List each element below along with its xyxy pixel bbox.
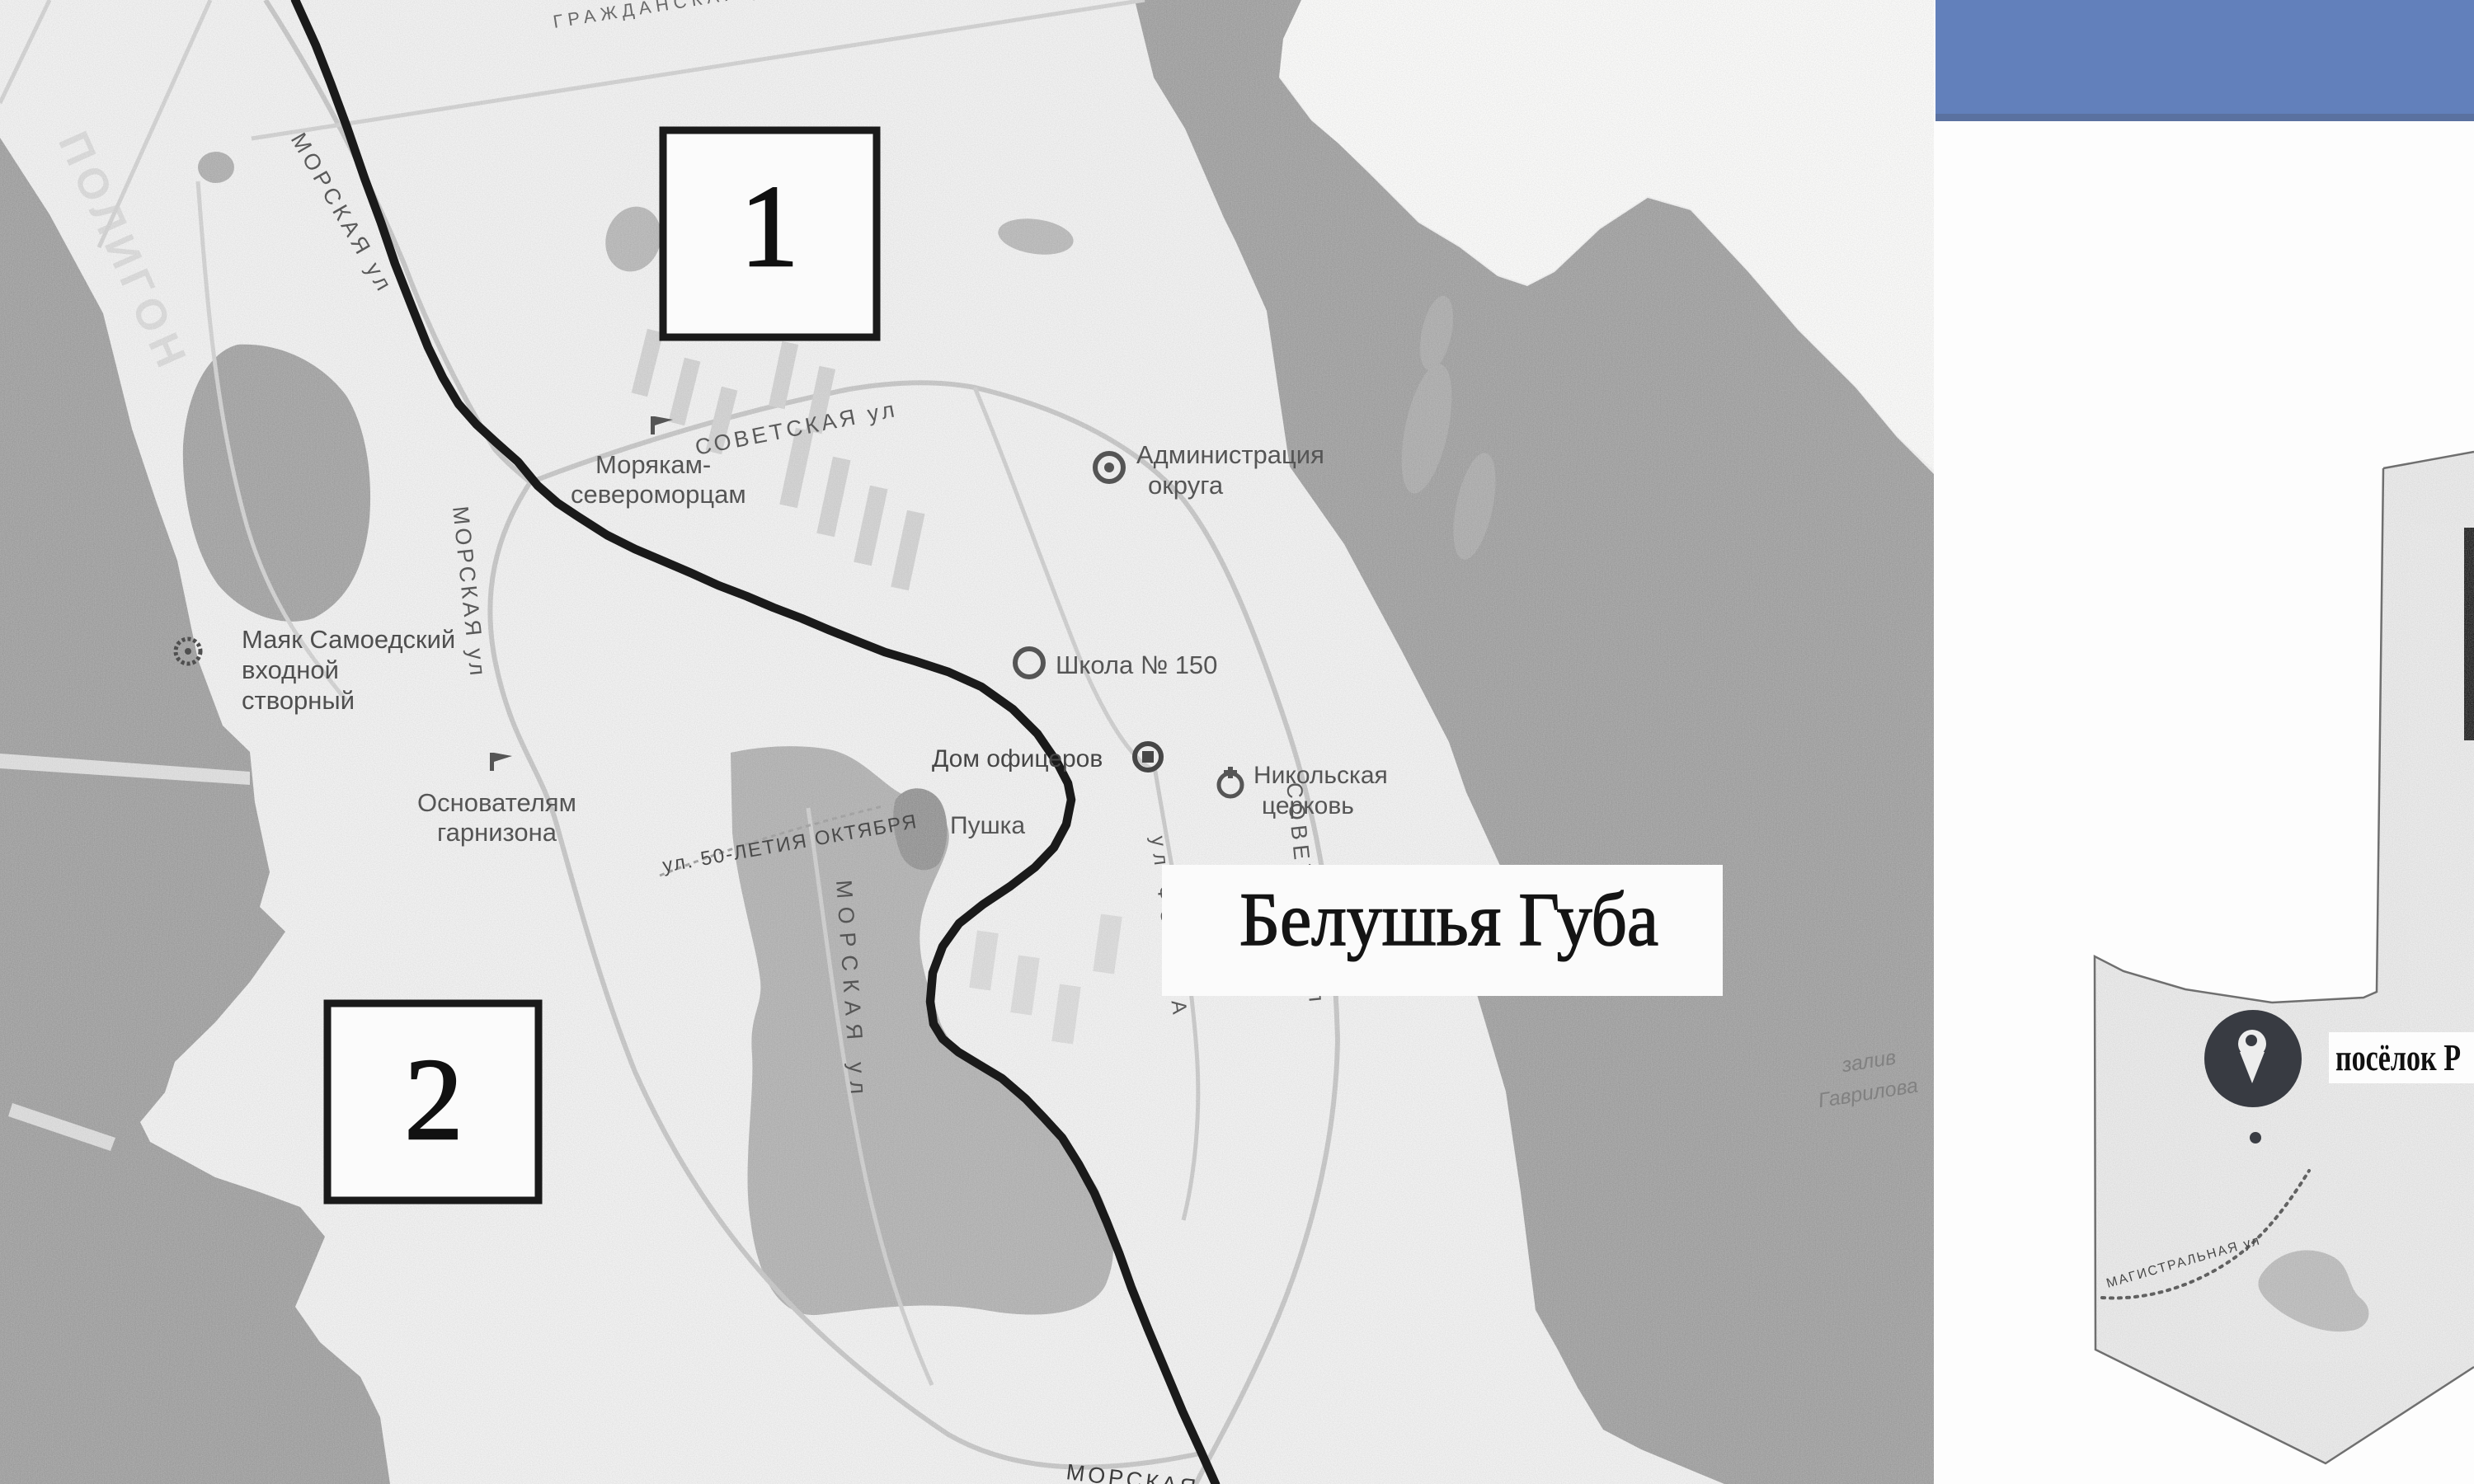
svg-text:посёлок Р: посёлок Р	[2335, 1036, 2461, 1078]
svg-text:Дом офицеров: Дом офицеров	[932, 745, 1103, 773]
svg-text:створный: створный	[242, 686, 355, 715]
svg-text:2: 2	[405, 1034, 463, 1164]
svg-text:гарнизона: гарнизона	[437, 818, 557, 847]
svg-text:Морякам-: Морякам-	[595, 450, 711, 479]
svg-text:Маяк Самоедский: Маяк Самоедский	[242, 625, 455, 654]
svg-text:округа: округа	[1148, 471, 1224, 500]
svg-text:Белушья Губа: Белушья Губа	[1239, 877, 1658, 961]
svg-text:североморцам: североморцам	[571, 480, 746, 509]
svg-text:церковь: церковь	[1262, 792, 1354, 819]
svg-text:Основателям: Основателям	[417, 788, 576, 817]
svg-text:входной: входной	[242, 655, 339, 684]
svg-text:Пушка: Пушка	[950, 812, 1025, 839]
svg-text:Школа № 150: Школа № 150	[1056, 650, 1217, 679]
svg-text:1: 1	[741, 161, 799, 291]
svg-text:Администрация: Администрация	[1136, 440, 1324, 469]
svg-text:Никольская: Никольская	[1253, 762, 1388, 789]
